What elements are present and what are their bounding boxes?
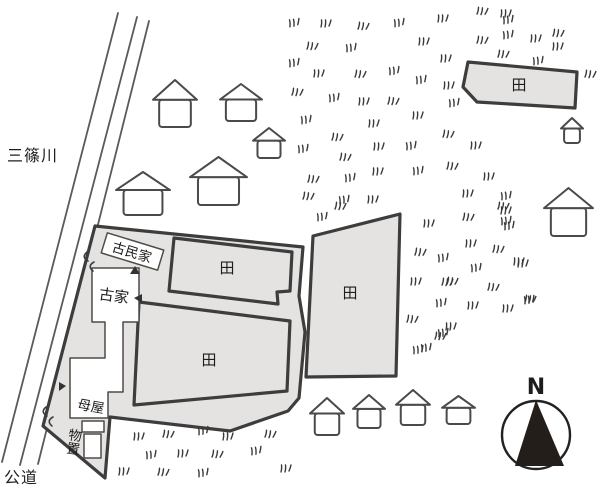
grass-mark — [443, 130, 454, 138]
grass-mark — [415, 248, 426, 256]
grass-mark — [321, 20, 331, 27]
grass-mark — [329, 93, 340, 101]
grass-mark — [501, 10, 511, 17]
road-label: 公道 — [4, 468, 38, 487]
north-label: N — [527, 375, 545, 400]
grass-mark — [463, 190, 473, 197]
site-map-canvas: 三篠川 公道 古民家 古家 母屋 物置 田 田 田 田 N — [0, 0, 600, 499]
grass-mark — [346, 43, 357, 51]
grass-mark — [289, 18, 300, 26]
grass-mark — [447, 162, 458, 170]
house-icon — [310, 398, 344, 435]
grass-mark — [389, 66, 400, 74]
compass-needle-icon — [515, 400, 564, 466]
grass-mark — [134, 433, 144, 440]
grass-mark — [503, 305, 513, 312]
grass-mark — [292, 88, 303, 96]
compass: N — [502, 375, 570, 469]
grass-mark — [359, 98, 369, 105]
grass-mark — [368, 196, 378, 203]
grass-mark — [498, 50, 509, 58]
rice-fields — [134, 62, 577, 405]
field-label-northeast: 田 — [511, 76, 526, 94]
grass-mark — [212, 450, 223, 458]
grass-mark — [163, 430, 174, 438]
grass-mark — [332, 133, 343, 141]
grass-mark — [223, 433, 233, 440]
grass-mark — [533, 56, 544, 64]
grass-mark — [438, 253, 449, 261]
grass-mark — [466, 240, 476, 247]
grass-mark — [463, 213, 474, 221]
house-icon — [220, 84, 262, 121]
grass-mark — [340, 153, 351, 161]
storage-building-1 — [82, 421, 104, 432]
grass-mark — [436, 298, 447, 306]
grass-mark — [394, 18, 405, 26]
house-icon — [442, 396, 475, 424]
grass-mark — [358, 22, 369, 30]
grass-mark — [301, 115, 312, 123]
grass-mark — [435, 332, 446, 340]
grass-mark — [373, 168, 383, 175]
grass-mark — [406, 141, 417, 149]
grass-mark — [553, 29, 564, 37]
house-icon — [396, 390, 430, 425]
grass-mark — [441, 55, 451, 62]
grass-mark — [407, 315, 418, 323]
grass-mark — [419, 38, 429, 45]
grass-mark — [585, 70, 596, 78]
grass-mark — [501, 191, 512, 199]
grass-mark — [553, 43, 563, 50]
grass-mark — [198, 468, 209, 476]
grass-mark — [265, 430, 276, 438]
house-icon — [116, 172, 170, 215]
grass-mark — [477, 7, 488, 15]
grass-mark — [416, 75, 427, 83]
grass-mark — [303, 192, 314, 200]
grass-mark — [119, 468, 129, 475]
field-label-upper: 田 — [219, 259, 234, 277]
grass-mark — [447, 277, 458, 285]
grass-mark — [488, 283, 499, 291]
grass-mark — [471, 142, 481, 149]
grass-mark — [471, 263, 482, 271]
house-icon — [190, 157, 247, 205]
grass-mark — [146, 450, 157, 458]
house-icon — [544, 188, 593, 236]
site-map-page: 三篠川 公道 古民家 古家 母屋 物置 田 田 田 田 N — [0, 0, 600, 499]
grass-mark — [424, 220, 434, 227]
grass-mark — [317, 212, 328, 220]
house-icon — [153, 80, 197, 127]
house-icon — [353, 395, 385, 428]
grass-mark — [298, 144, 309, 152]
grass-mark — [449, 98, 460, 106]
grass-mark — [178, 450, 188, 457]
field-label-east: 田 — [342, 284, 357, 302]
grass-mark — [281, 465, 291, 472]
grass-mark — [345, 173, 356, 181]
grass-mark — [308, 175, 319, 183]
grass-mark — [307, 42, 318, 50]
grass-mark — [369, 120, 379, 127]
river-label: 三篠川 — [7, 146, 58, 165]
grass-mark — [374, 143, 384, 150]
grass-mark — [477, 36, 488, 44]
grass-mark — [493, 245, 504, 253]
house-icon — [253, 128, 285, 158]
grass-mark — [498, 202, 509, 210]
grass-mark — [531, 35, 541, 42]
grass-mark — [158, 468, 169, 476]
grass-mark — [438, 15, 448, 22]
grass-mark — [501, 216, 512, 224]
grass-mark — [468, 302, 478, 309]
grass-mark — [413, 166, 424, 174]
grass-mark — [289, 58, 300, 66]
grass-mark — [388, 97, 399, 105]
grass-mark — [251, 446, 262, 454]
grass-mark — [444, 82, 454, 89]
grass-mark — [484, 173, 494, 180]
grass-mark — [413, 112, 423, 119]
grass-mark — [355, 70, 366, 78]
grass-mark — [411, 278, 421, 285]
grass-mark — [314, 70, 324, 77]
storage-building-2 — [84, 434, 101, 458]
house-icon — [561, 118, 583, 143]
field-label-lower: 田 — [201, 351, 216, 369]
grass-mark — [503, 30, 514, 38]
grass-mark — [421, 343, 432, 351]
